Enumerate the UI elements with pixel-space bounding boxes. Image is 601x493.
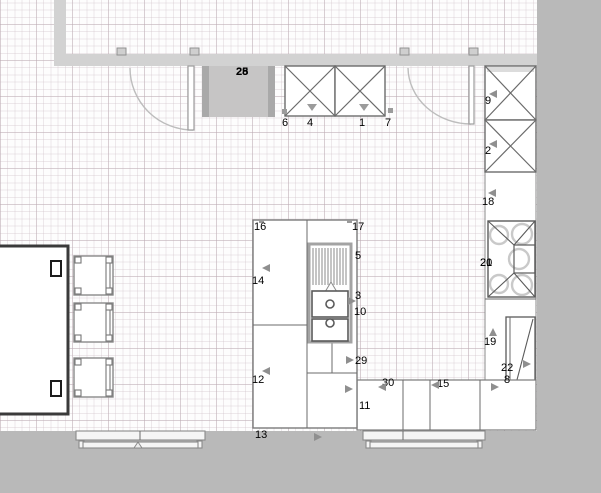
door-post bbox=[117, 48, 126, 55]
direction-marker bbox=[523, 360, 531, 368]
kitchen-island[interactable] bbox=[253, 219, 357, 428]
item-label-7: 7 bbox=[385, 117, 391, 130]
floor-plan-canvas: 2528641792182021192281617514310291213301… bbox=[0, 0, 601, 493]
item-label-10: 10 bbox=[354, 306, 366, 319]
direction-marker bbox=[431, 381, 439, 389]
direction-marker bbox=[346, 356, 354, 364]
item-label-21: 21 bbox=[480, 257, 492, 270]
door-panel[interactable] bbox=[469, 66, 474, 124]
direction-marker bbox=[489, 328, 497, 336]
drawer-handle bbox=[326, 319, 334, 327]
door-post bbox=[400, 48, 409, 55]
item-label-29: 29 bbox=[355, 355, 367, 368]
item-label-5: 5 bbox=[355, 250, 361, 263]
dining-table[interactable] bbox=[0, 246, 68, 414]
direction-marker bbox=[348, 297, 356, 305]
walls[interactable] bbox=[54, 0, 537, 66]
door-panel[interactable] bbox=[188, 66, 194, 130]
item-label-4: 4 bbox=[307, 117, 313, 130]
chair-3[interactable] bbox=[74, 358, 113, 397]
direction-marker bbox=[491, 383, 499, 391]
door-post bbox=[469, 48, 478, 55]
handle-dot bbox=[388, 108, 393, 113]
table-handle bbox=[51, 261, 61, 276]
range-unit[interactable] bbox=[309, 244, 351, 342]
direction-marker bbox=[489, 90, 497, 98]
floor-plan-drawing bbox=[0, 0, 601, 493]
wall-cabinet-4[interactable] bbox=[282, 66, 335, 116]
item-label-6: 6 bbox=[282, 117, 288, 130]
direction-marker bbox=[262, 367, 270, 375]
wall-top[interactable] bbox=[54, 54, 537, 66]
cabinet-crown bbox=[487, 67, 534, 72]
item-label-1: 1 bbox=[359, 117, 365, 130]
chair-1[interactable] bbox=[74, 256, 113, 295]
door-swing-arc bbox=[130, 68, 193, 130]
item-label-11: 11 bbox=[359, 400, 370, 413]
cooktop-20[interactable] bbox=[488, 221, 535, 297]
item-label-8: 8 bbox=[504, 374, 510, 387]
item-label-28: 28 bbox=[236, 66, 248, 79]
item-label-14: 14 bbox=[252, 275, 264, 288]
item-label-12: 12 bbox=[252, 374, 264, 387]
door-swing-arc bbox=[408, 68, 471, 124]
direction-marker bbox=[345, 385, 353, 393]
door-post bbox=[190, 48, 199, 55]
appliance-block-edge bbox=[202, 66, 209, 117]
appliance-block-edge bbox=[268, 66, 275, 117]
direction-marker bbox=[262, 264, 270, 272]
table-handle bbox=[51, 381, 61, 396]
window-left[interactable] bbox=[76, 431, 205, 448]
direction-marker bbox=[314, 433, 322, 441]
item-label-13: 13 bbox=[255, 429, 267, 442]
window-right[interactable] bbox=[363, 431, 485, 448]
direction-marker bbox=[378, 383, 386, 391]
item-label-19: 19 bbox=[484, 336, 496, 349]
outside-area-right bbox=[537, 0, 601, 493]
handle-dot bbox=[282, 109, 287, 114]
direction-marker bbox=[488, 189, 496, 197]
item-label-18: 18 bbox=[482, 196, 494, 209]
wall-cabinet-1[interactable] bbox=[335, 66, 393, 116]
chair-2[interactable] bbox=[74, 303, 113, 342]
item-label-16: 16 bbox=[254, 221, 266, 234]
item-label-17: 17 bbox=[352, 221, 364, 234]
oven-handle bbox=[326, 300, 334, 308]
direction-marker bbox=[489, 140, 497, 148]
